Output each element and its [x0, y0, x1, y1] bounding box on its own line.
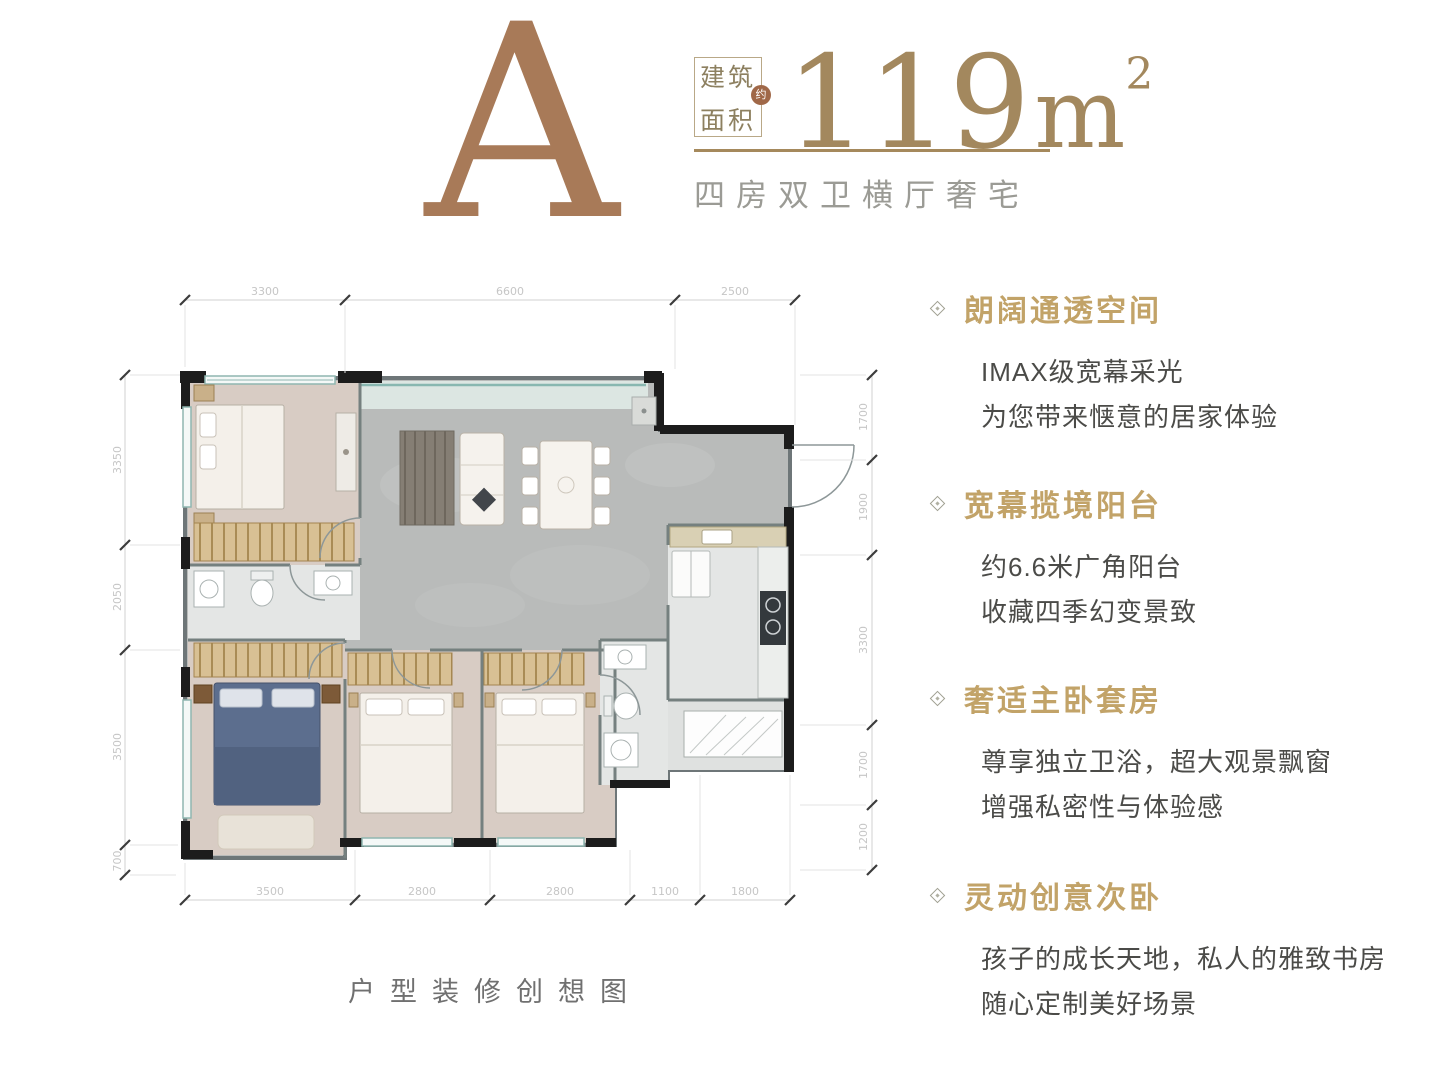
approx-seal-icon: 约: [751, 85, 771, 105]
dim-right-3: 3300: [857, 626, 870, 654]
bedroom-3-furniture: [484, 653, 595, 813]
dim-top-2: 6600: [496, 285, 524, 298]
diamond-bullet-icon: [930, 887, 946, 903]
floor-plan-svg: 3300 6600 2500 3500 2800 2800 1100 1800 …: [110, 275, 920, 920]
dim-left-4: 700: [111, 851, 124, 872]
feature-line: 约6.6米广角阳台: [981, 545, 1197, 590]
feature-item: 灵动创意次卧 孩子的成长天地，私人的雅致书房 随心定制美好场景: [932, 873, 1386, 1027]
feature-line: 孩子的成长天地，私人的雅致书房: [981, 937, 1386, 982]
dim-bottom-2: 2800: [408, 885, 436, 898]
dim-top-3: 2500: [721, 285, 749, 298]
dim-right-4: 1700: [857, 751, 870, 779]
feature-line: 尊享独立卫浴，超大观景飘窗: [981, 740, 1332, 785]
plan-caption: 户型装修创想图: [300, 970, 690, 1009]
unit-letter: A: [425, 0, 595, 258]
dim-right-2: 1900: [857, 493, 870, 521]
diamond-bullet-icon: [930, 495, 946, 511]
feature-item: 宽幕揽境阳台 约6.6米广角阳台 收藏四季幻变景致: [932, 481, 1197, 635]
dim-right-1: 1700: [857, 403, 870, 431]
diamond-bullet-icon: [930, 300, 946, 316]
feature-title: 宽幕揽境阳台: [964, 481, 1162, 525]
area-label-box: 建筑 面积 约: [694, 57, 762, 137]
bedroom-2-furniture: [348, 653, 463, 813]
feature-list: 朗阔通透空间 IMAX级宽幕采光 为您带来惬意的居家体验 宽幕揽境阳台 约6.6…: [932, 0, 1422, 1075]
dim-bottom-1: 3500: [256, 885, 284, 898]
feature-line: 收藏四季幻变景致: [981, 590, 1197, 635]
feature-item: 奢适主卧套房 尊享独立卫浴，超大观景飘窗 增强私密性与体验感: [932, 676, 1332, 830]
page: A 建筑 面积 约 119 m 2 四房双卫横厅奢宅: [0, 0, 1440, 1075]
diamond-bullet-icon: [930, 690, 946, 706]
dim-left-1: 3350: [111, 446, 124, 474]
feature-line: 随心定制美好场景: [981, 982, 1386, 1027]
feature-item: 朗阔通透空间 IMAX级宽幕采光 为您带来惬意的居家体验: [932, 286, 1278, 440]
entry-bench: [684, 711, 782, 757]
dim-right-5: 1200: [857, 823, 870, 851]
dim-left-3: 3500: [111, 733, 124, 761]
feature-line: 增强私密性与体验感: [981, 785, 1332, 830]
feature-line: IMAX级宽幕采光: [981, 350, 1278, 395]
dim-top-1: 3300: [251, 285, 279, 298]
feature-title: 灵动创意次卧: [964, 873, 1162, 917]
feature-line: 为您带来惬意的居家体验: [981, 395, 1278, 440]
area-label-top: 建筑: [700, 58, 756, 94]
dim-left-2: 2050: [111, 583, 124, 611]
feature-title: 朗阔通透空间: [964, 286, 1162, 330]
dim-bottom-3: 2800: [546, 885, 574, 898]
entry-door-arc: [792, 445, 854, 507]
dim-bottom-5: 1800: [731, 885, 759, 898]
floor-plan: 3300 6600 2500 3500 2800 2800 1100 1800 …: [110, 275, 920, 920]
dim-bottom-4: 1100: [651, 885, 679, 898]
feature-title: 奢适主卧套房: [964, 676, 1162, 720]
area-label-bottom: 面积: [700, 101, 756, 137]
